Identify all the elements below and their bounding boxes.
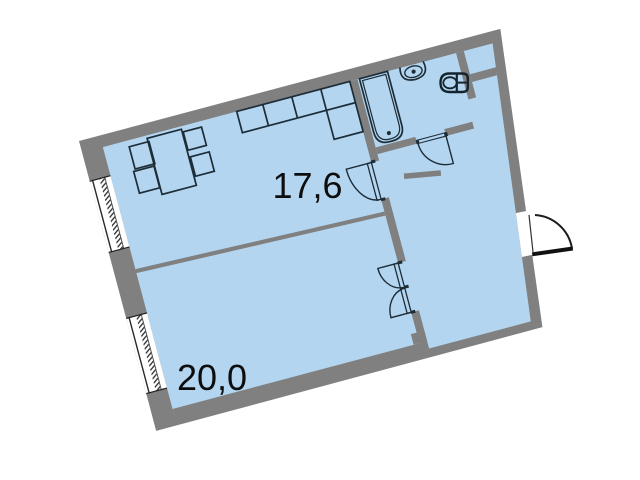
svg-text:20,0: 20,0 [177, 357, 247, 398]
svg-text:17,6: 17,6 [273, 165, 343, 206]
